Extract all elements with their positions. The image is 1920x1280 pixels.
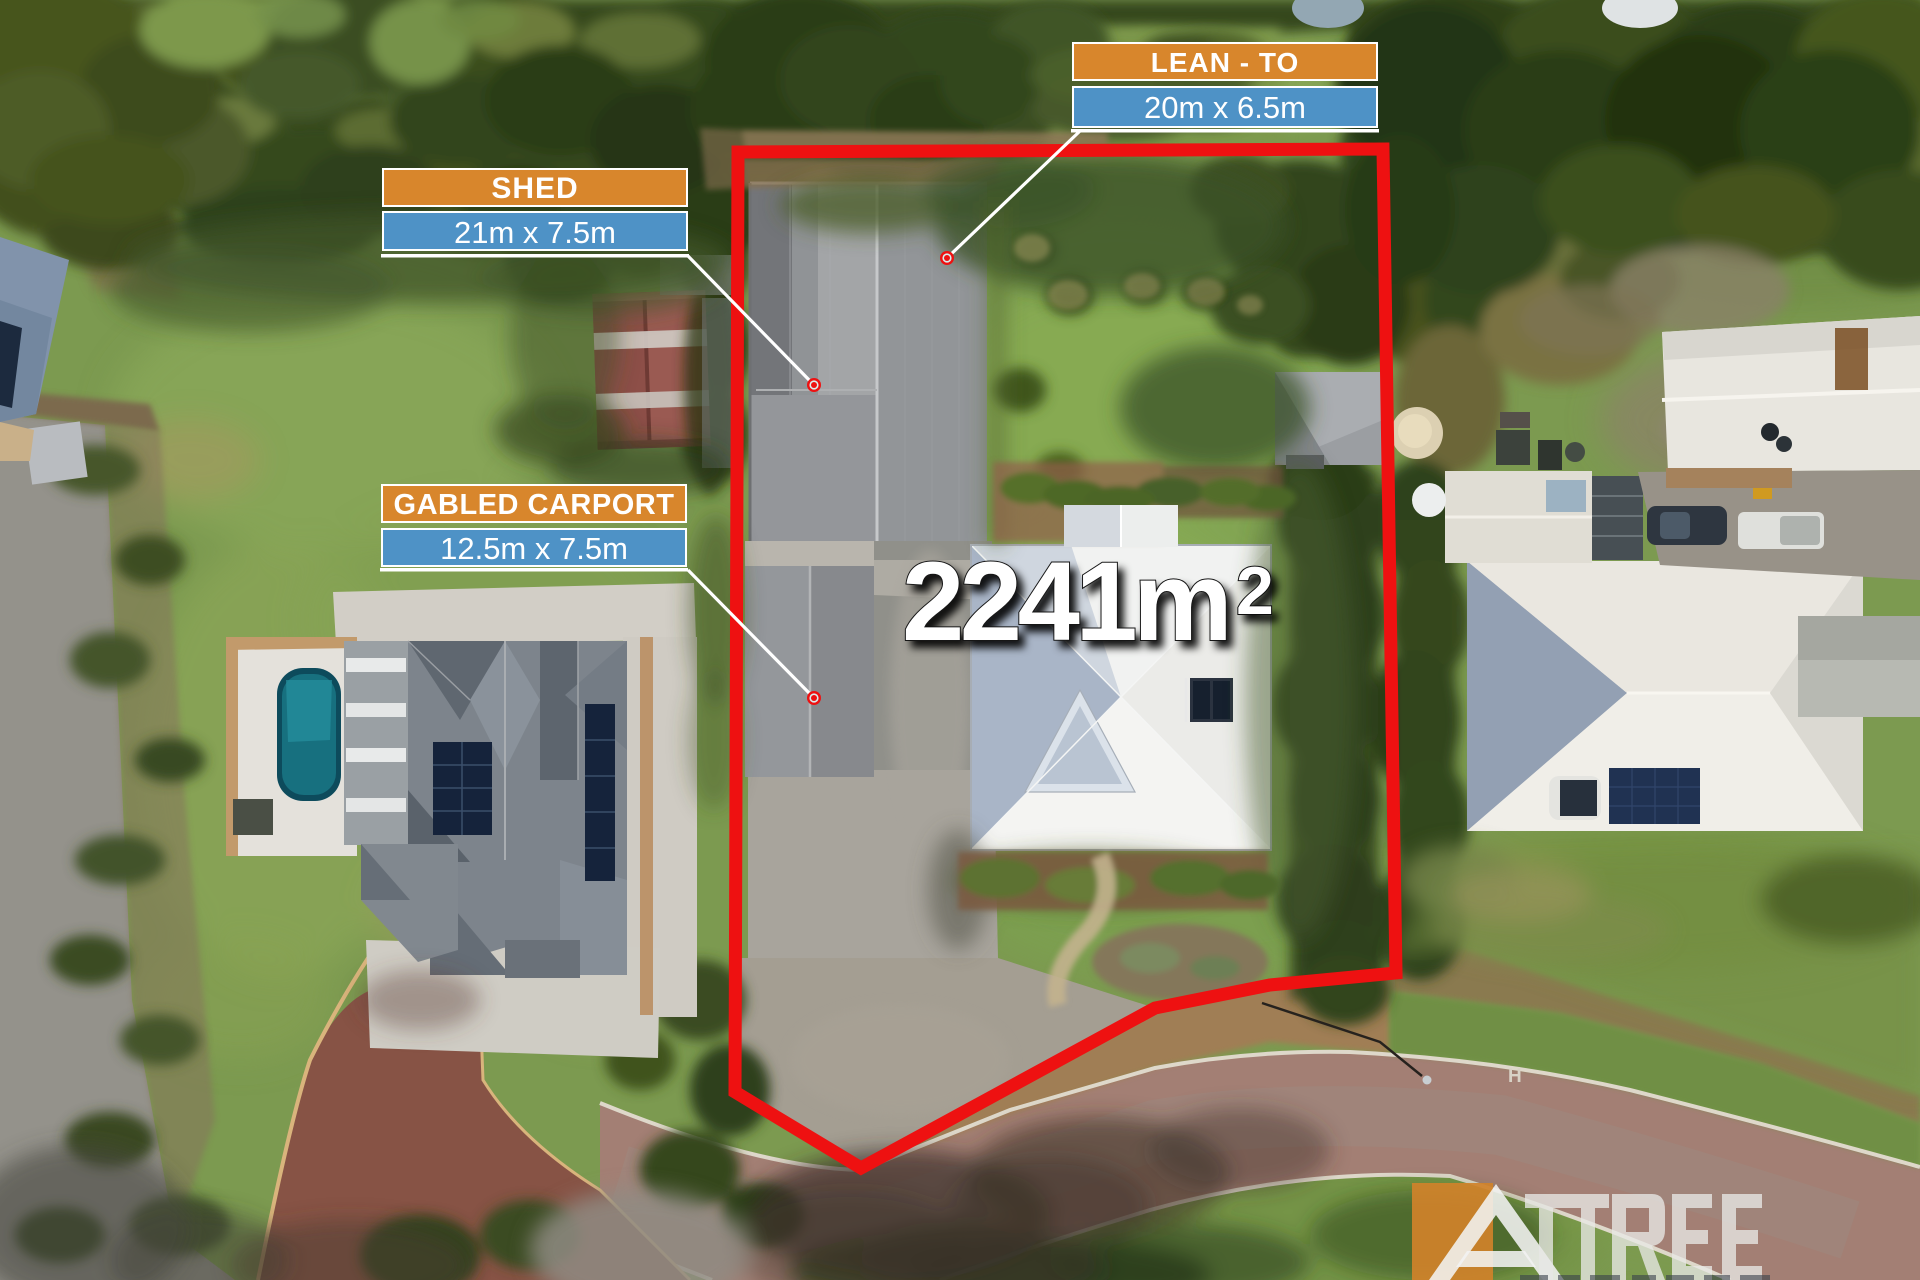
svg-text:2: 2 (1236, 553, 1274, 629)
svg-text:2241m: 2241m (902, 539, 1228, 664)
svg-text:20m x 6.5m: 20m x 6.5m (1144, 90, 1306, 125)
svg-text:SHED: SHED (491, 172, 578, 205)
svg-text:GABLED CARPORT: GABLED CARPORT (394, 489, 675, 521)
svg-text:21m x 7.5m: 21m x 7.5m (454, 215, 616, 250)
svg-text:12.5m x 7.5m: 12.5m x 7.5m (440, 531, 628, 566)
svg-text:H: H (1508, 1066, 1522, 1087)
svg-text:LEAN - TO: LEAN - TO (1151, 47, 1299, 78)
